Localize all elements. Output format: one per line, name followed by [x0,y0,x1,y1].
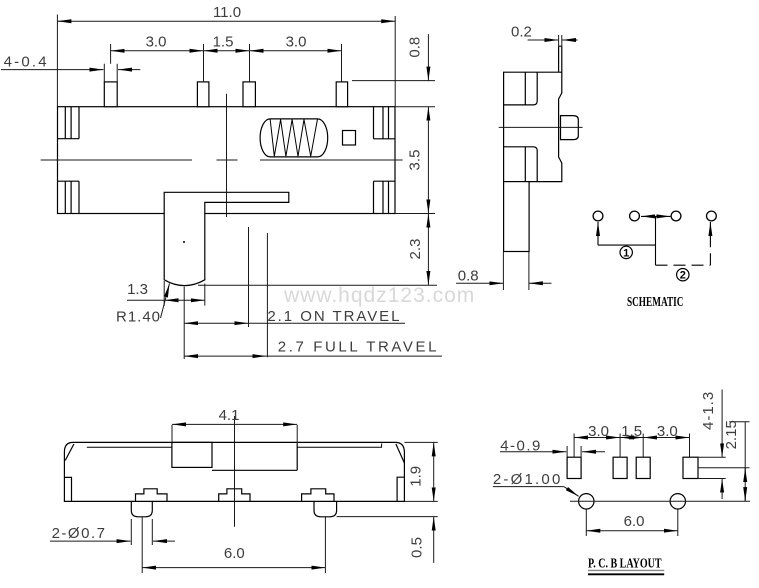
svg-text:www.hqdz123.com: www.hqdz123.com [283,284,475,307]
svg-text:0.8: 0.8 [458,268,479,285]
svg-text:6.0: 6.0 [224,545,245,562]
svg-text:1.3: 1.3 [127,281,148,298]
svg-text:2-Ø0.7: 2-Ø0.7 [52,525,107,542]
svg-text:3.5: 3.5 [407,150,424,171]
svg-text:2.15: 2.15 [723,420,740,449]
svg-text:4-1.3: 4-1.3 [700,391,717,430]
svg-text:0.8: 0.8 [407,37,424,58]
svg-text:3.0: 3.0 [146,34,167,51]
svg-text:0.5: 0.5 [409,537,426,558]
svg-text:1: 1 [623,247,629,259]
svg-text:2: 2 [680,270,686,282]
svg-text:2-Ø1.00: 2-Ø1.00 [493,471,563,488]
svg-text:2.7 FULL TRAVEL: 2.7 FULL TRAVEL [278,339,439,356]
svg-text:1.5: 1.5 [213,34,234,51]
svg-text:P. C. B LAYOUT: P. C. B LAYOUT [588,557,662,572]
svg-text:3.0: 3.0 [657,423,678,440]
svg-text:1.9: 1.9 [407,466,424,487]
svg-text:4.1: 4.1 [219,407,240,424]
svg-text:11.0: 11.0 [213,4,241,21]
svg-text:4-0.4: 4-0.4 [4,54,49,71]
svg-text:4-0.9: 4-0.9 [500,438,542,455]
svg-text:6.0: 6.0 [624,513,645,530]
svg-text:3.0: 3.0 [286,34,307,51]
svg-text:2.3: 2.3 [407,239,424,260]
svg-text:SCHEMATIC: SCHEMATIC [627,295,684,310]
svg-text:R1.40: R1.40 [116,309,161,326]
svg-text:1.5: 1.5 [621,423,642,440]
svg-text:2.1 ON TRAVEL: 2.1 ON TRAVEL [267,308,401,325]
svg-text:0.2: 0.2 [511,24,532,41]
svg-text:3.0: 3.0 [588,423,609,440]
